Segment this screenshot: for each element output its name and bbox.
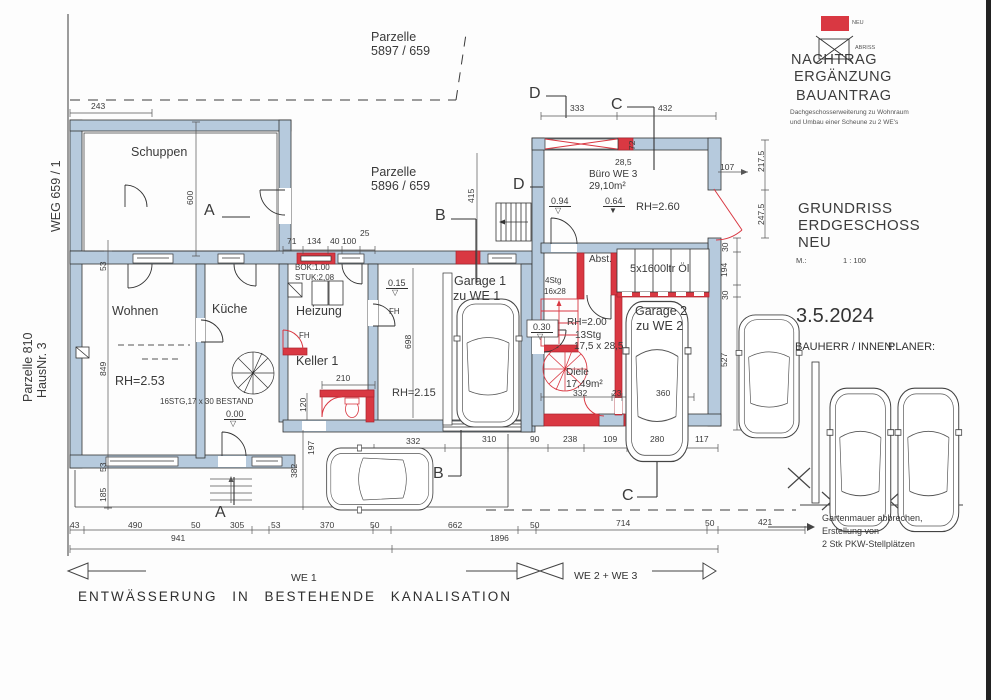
plan-dimension-label: 53 [271, 521, 280, 530]
plan-dimension-label: 107 [720, 163, 734, 172]
section-a-top: A [204, 203, 215, 219]
drawing-title-1: GRUNDRISS [798, 200, 893, 217]
section-b-top: B [435, 208, 446, 224]
room-garage1-we: zu WE 1 [453, 290, 500, 303]
scale-label: M.: [796, 256, 806, 265]
dimension-lines [70, 109, 805, 553]
planer-label: PLANER: [888, 341, 935, 353]
weg-label: WEG 659 / 1 [50, 160, 63, 232]
drawing-title-2: ERDGESCHOSS [798, 217, 920, 234]
room-diele: Diele [566, 368, 589, 378]
plan-dimension-label: 90 [530, 435, 539, 444]
stair-13stg-label: 13Stg [575, 331, 601, 341]
plan-dimension-label: 50 [370, 521, 379, 530]
plan-dimension-label: 100 [342, 237, 356, 246]
legend-neu-label: NEU [852, 20, 864, 26]
plan-dimension-label: 109 [603, 435, 617, 444]
we1-label: WE 1 [291, 572, 317, 584]
section-c-bottom: C [622, 488, 634, 504]
title-bauantrag: BAUANTRAG [796, 88, 892, 104]
level-030-triangle: ▽ [537, 333, 543, 341]
plan-dimension-label: 490 [128, 521, 142, 530]
plan-dimension-label: 28,5 [615, 158, 632, 167]
plan-dimension-label: 210 [336, 374, 350, 383]
plan-dimension-label: 432 [658, 104, 672, 113]
plan-dimension-label: 30 [721, 243, 730, 252]
plan-dimension-label: 117 [695, 435, 709, 444]
plan-dimension-label: 305 [230, 521, 244, 530]
plan-dimension-label: 360 [656, 389, 670, 398]
room-buero-area: 29,10m² [589, 182, 626, 192]
parcel-5896-number: 5896 / 659 [371, 180, 430, 193]
plan-dimension-label: 600 [186, 191, 195, 205]
plan-dimension-label: 332 [573, 389, 587, 398]
stair-entry-small [210, 476, 252, 503]
plan-dimension-label: 50 [191, 521, 200, 530]
stuk-label: STUK:2,08 [295, 274, 334, 282]
level-064-triangle: ▼ [609, 207, 617, 215]
room-keller: Keller 1 [296, 355, 338, 368]
drawing-title-3: NEU [798, 234, 831, 251]
plan-dimension-label: 370 [320, 521, 334, 530]
plan-dimension-label: 247.5 [757, 204, 766, 225]
section-c-top: C [611, 97, 623, 113]
room-garage2: Garage 2 [635, 305, 687, 318]
room-schuppen: Schuppen [131, 146, 187, 159]
parcel-5896-label: Parzelle [371, 166, 416, 179]
section-d-mid: D [513, 177, 525, 193]
plan-dimension-label: 382 [290, 464, 299, 478]
title-subtitle-1: Dachgeschosserweiterung zu Wohnraum [790, 108, 909, 118]
hausnr-label: HausNr. 3 [36, 342, 49, 398]
plan-dimension-label: 941 [171, 534, 185, 543]
plan-dimension-label: 53 [99, 262, 108, 271]
plan-dimension-label: 310 [482, 435, 496, 444]
drainage-note: ENTWÄSSERUNG IN BESTEHENDE KANALISATION [78, 589, 512, 604]
plan-dimension-label: 194 [720, 263, 729, 277]
plan-dimension-label: 1896 [490, 534, 509, 543]
we23-label: WE 2 + WE 3 [574, 570, 637, 582]
plan-dimension-label: 72 [628, 141, 637, 150]
neu-swatch-icon [821, 16, 849, 31]
stair-4stg-size: 16x28 [544, 288, 566, 296]
plan-dimension-label: 415 [467, 189, 476, 203]
plan-dimension-label: 849 [99, 362, 108, 376]
plan-dimension-label: 43 [70, 521, 79, 530]
scale-value: 1 : 100 [843, 256, 866, 265]
section-d-top: D [529, 86, 541, 102]
plan-dimension-label: 25 [360, 229, 369, 238]
level-000-triangle: ▽ [230, 420, 236, 428]
stair-spiral-existing [232, 352, 274, 394]
plan-dimension-label: 333 [570, 104, 584, 113]
stair-13stg-size: 17,5 x 28,5 [574, 342, 623, 352]
car-right-icon [736, 315, 802, 438]
plan-dimension-label: 527 [720, 353, 729, 367]
garden-note-2: Erstellung von [822, 525, 879, 538]
parcel-5897-number: 5897 / 659 [371, 45, 430, 58]
rh-wohnen: RH=2.53 [115, 375, 165, 388]
oil-tanks-label: 5x1600ltr Öl [630, 264, 689, 275]
plan-dimension-label: 40 [330, 237, 339, 246]
stair-4stg-label: 4Stg [545, 277, 561, 285]
plan-dimension-label: 185 [99, 488, 108, 502]
rh-buero: RH=2.60 [636, 202, 680, 213]
plan-dimension-label: 698 [404, 335, 413, 349]
room-garage1: Garage 1 [454, 275, 506, 288]
bauherr-label: BAUHERR / INNEN: [795, 341, 895, 353]
room-wohnen: Wohnen [112, 305, 158, 318]
plan-dimension-label: 332 [406, 437, 420, 446]
level-015-triangle: ▽ [392, 289, 398, 297]
plan-dimension-label: 662 [448, 521, 462, 530]
plan-dimension-label: 50 [705, 519, 714, 528]
parcel-810-label: Parzelle 810 [22, 333, 35, 403]
title-nachtrag: NACHTRAG [791, 52, 877, 68]
plan-dimension-label: 50 [530, 521, 539, 530]
fh-label-1: FH [299, 332, 310, 340]
plan-dimension-label: 714 [616, 519, 630, 528]
legend-abriss-label: ABRISS [855, 45, 875, 51]
car-yard-icon [327, 445, 433, 513]
plan-dimension-label: 71 [287, 237, 296, 246]
room-abst: Abst. [589, 255, 612, 265]
car-garage1-icon [454, 299, 522, 427]
rh-garage1: RH=2.15 [392, 388, 436, 399]
room-buero: Büro WE 3 [589, 170, 637, 180]
plan-dimension-label: 197 [307, 441, 316, 455]
room-heizung: Heizung [296, 305, 342, 318]
title-subtitle-2: und Umbau einer Scheune zu 2 WE's [790, 118, 898, 128]
plan-dimension-label: 243 [91, 102, 105, 111]
garden-note-3: 2 Stk PKW-Stellplätzen [822, 538, 915, 551]
floor-plan-canvas: Parzelle5897 / 659Parzelle5896 / 659WEG … [0, 0, 991, 700]
level-094-triangle: ▽ [555, 207, 561, 215]
car-parking1-icon [827, 388, 894, 531]
parcel-5897-label: Parzelle [371, 31, 416, 44]
plan-dimension-label: 217.5 [757, 151, 766, 172]
plan-dimension-label: 53 [99, 463, 108, 472]
plan-dimension-label: 30 [721, 291, 730, 300]
fh-label-2: FH [389, 308, 400, 316]
plan-dimension-label: 23 [612, 389, 621, 398]
car-parking2-icon [895, 388, 962, 531]
plan-dimension-label: 280 [650, 435, 664, 444]
section-b-bottom: B [433, 466, 444, 482]
bok-label: BOK:1.00 [295, 264, 330, 272]
room-garage2-we: zu WE 2 [636, 320, 683, 333]
stair-exterior [496, 203, 531, 241]
plan-dimension-label: 134 [307, 237, 321, 246]
room-kueche: Küche [212, 303, 247, 316]
plan-dimension-label: 238 [563, 435, 577, 444]
date: 3.5.2024 [796, 305, 874, 328]
plan-dimension-label: 421 [758, 518, 772, 527]
stair-bestand-label: 16STG,17 x 30 BESTAND [160, 398, 253, 406]
garden-note-1: Gartenmauer abbrechen, [822, 512, 923, 525]
rh-diele: RH=2.00 [567, 318, 607, 328]
plan-dimension-label: 120 [299, 398, 308, 412]
section-a-bottom: A [215, 505, 226, 521]
title-ergaenzung: ERGÄNZUNG [794, 69, 892, 85]
